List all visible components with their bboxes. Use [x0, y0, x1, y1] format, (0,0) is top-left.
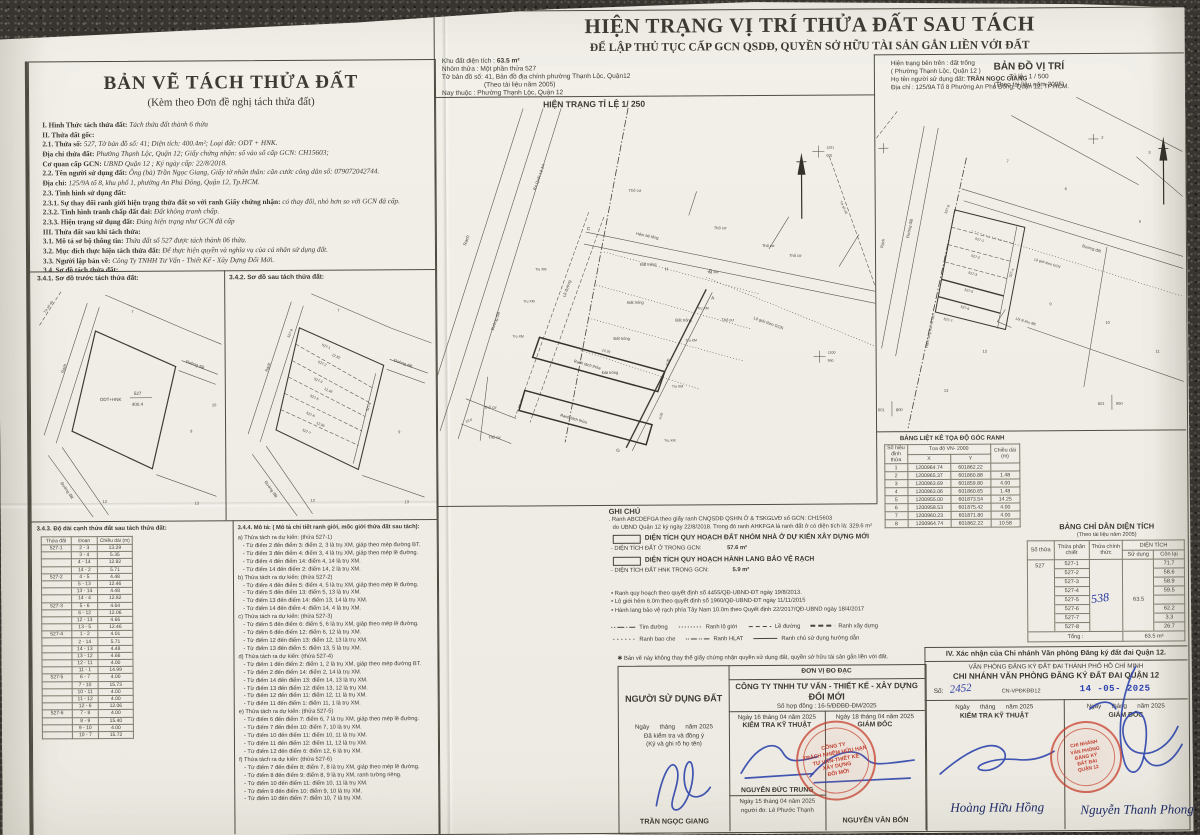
loc-n2: 2 — [1101, 135, 1104, 140]
area-col-chiet: Thửa phân chiết — [1054, 541, 1089, 560]
edge-row: 12 - 134.66 — [42, 616, 133, 624]
edge-row: 13 - 124.66 — [42, 652, 133, 660]
notes-title: GHI CHÚ — [609, 508, 641, 517]
unit-company2: ĐỔI MỚI — [729, 691, 925, 703]
area-use-value: 63.5 — [1123, 597, 1154, 604]
dim-100: 10.0 — [465, 418, 473, 424]
coord-col-x: X — [907, 454, 950, 464]
edge-row: 4 - 1412.82 — [41, 559, 132, 567]
loc-c2b: 900 — [1116, 401, 1123, 406]
strip-527-7: 527-7 — [302, 428, 312, 435]
area-col-dt: DIỆN TÍCH — [1123, 540, 1185, 550]
box1-sub-value: 57.6 m² — [727, 545, 747, 551]
office-tech-name: Hoàng Hữu Hồng — [950, 799, 1044, 816]
area-total-label: Tổng : — [1028, 631, 1123, 642]
main-title: HIỆN TRẠNG VỊ TRÍ THỬA ĐẤT SAU TÁCH — [454, 11, 1166, 40]
edge-row: 9 - 104.00 — [42, 724, 133, 732]
edge-row: 11 - 124.00 — [42, 695, 133, 703]
parcel-info-lines: I. Hình Thức tách thửa đất: Tách thửa đấ… — [42, 119, 427, 276]
edge-row: 11 - 114.99 — [42, 667, 133, 675]
neighbor-10: 10 — [212, 402, 217, 407]
loc-527-7: 527-7 — [943, 317, 953, 323]
box2-sub-value: 5.9 m² — [732, 567, 749, 573]
grid1-a: 1201 — [826, 146, 834, 150]
loc-527-8: 527-8 — [944, 204, 951, 214]
strip-527-5: 527-5 — [309, 394, 319, 401]
office-stamp-text: CHI NHÁNHVĂN PHÒNGĐĂNG KÝĐẤT ĐAIQUẬN 12 — [1068, 739, 1103, 775]
edge-col-parcel: Thửa đất — [41, 537, 71, 545]
main-map-roads — [434, 106, 876, 452]
area-table-subtitle: (Theo tài liệu năm 2005) — [1027, 531, 1187, 538]
loc-loidi: Lối đi khu đất — [1015, 317, 1036, 327]
label-thocu-1: Thổ cư — [629, 188, 642, 193]
office-tech-signature — [932, 729, 1057, 788]
sketch-landtype: ODT+HNK — [100, 397, 122, 402]
coord-table-title: BẢNG LIỆT KÊ TỌA ĐỘ GÓC RANH — [882, 434, 1022, 442]
loc-rach: Rạch — [879, 238, 886, 248]
label-dattrong-4: Đất trống — [614, 336, 630, 341]
office-tech-role: KIỂM TRA KỸ THUẬT — [925, 712, 1064, 721]
legend-box1-swatch — [613, 535, 641, 544]
coord-col-y: Y — [951, 454, 991, 464]
unit-survey-date: Ngày 15 tháng 04 năm 2025 — [729, 799, 825, 807]
edge-row: 13 - 144.48 — [42, 587, 133, 595]
loc-n6: 6 — [1065, 186, 1068, 191]
label-truxm-5: Trụ XM — [697, 306, 708, 310]
main-map-grid-marks — [812, 146, 825, 363]
legend-item: Tim đường — [611, 622, 667, 634]
neighbor2-12: 12 — [310, 498, 315, 503]
notes-bullets: Ranh quy hoạch theo quyết định số 4455/Q… — [611, 588, 921, 615]
loc-duongdat-top: Đường đất — [1082, 243, 1103, 254]
label-truxm-7: Trụ XM — [672, 384, 683, 388]
loc-c1b: 800 — [896, 407, 903, 412]
coord-col-point: Số hiệu đỉnh thửa — [885, 445, 908, 464]
label-truxm-8: Trụ XM — [664, 439, 675, 443]
neighbor2-9: 9 — [398, 429, 401, 434]
office-tech-date: Ngày tháng năm 2025 — [925, 703, 1064, 711]
label-truxm-3: Trụ XM — [512, 334, 523, 338]
edge-table-title: 3.4.3. Độ dài cạnh thửa đất sau tách thử… — [37, 525, 233, 533]
loc-527-1: 527-1 — [975, 237, 985, 243]
desc-line: - Từ điểm 1 đến điểm 2: điểm 1, 2 là trụ… — [238, 661, 436, 670]
main-map-north-arrow — [796, 153, 806, 219]
label-le-duong: Lề đường — [561, 279, 572, 297]
edge-row: 10 - 114.00 — [42, 688, 133, 696]
legend-item: Lề đường — [747, 621, 800, 633]
sketch2-rach: Rạch — [264, 362, 272, 372]
edge-row: 8 - 915.40 — [42, 717, 133, 725]
edge-row: 527-12 - 313.29 — [41, 544, 132, 552]
edge-row: 527-41 - 24.01 — [42, 631, 133, 639]
edge-row: 14 - 412.82 — [42, 595, 133, 603]
office-dir-name: Nguyễn Thanh Phong — [1080, 801, 1193, 818]
scanned-document: BẢN VẼ TÁCH THỬA ĐẤT (Kèm theo Đơn đề ng… — [0, 0, 1200, 835]
unit-dir-name: NGUYỄN VĂN BỐN — [825, 816, 925, 825]
desc-title: 3.4.4. Mô tả: ( Mô tả chi tiết ranh giới… — [238, 524, 436, 532]
dim-3: 12.06 — [316, 421, 326, 428]
sketch-road-label: Đường đất — [60, 481, 76, 500]
sketch-parcel-area: 400.4 — [132, 402, 144, 407]
edge-row: 12 - 612.06 — [42, 702, 133, 710]
label-thocu-4: Thổ cư — [789, 253, 802, 258]
label-thocu-6: Thổ cư — [484, 405, 497, 410]
loc-n12: 12 — [983, 349, 988, 354]
edge-row: 527-56 - 74.00 — [42, 674, 133, 682]
loc-527-2: 527-2 — [971, 254, 981, 260]
loc-n11: 11 — [1156, 349, 1161, 354]
paper-sheet: BẢN VẼ TÁCH THỬA ĐẤT (Kèm theo Đơn đề ng… — [0, 0, 1200, 835]
edge-row: 527-35 - 64.64 — [42, 602, 133, 610]
dim-1: 12.82 — [331, 353, 341, 360]
loc-logioi: Lộ giới theo GCN — [1034, 257, 1062, 269]
sketch2-road2: Đường đất — [393, 357, 414, 369]
dim-2: 12.46 — [323, 387, 333, 394]
point-H: H — [665, 267, 668, 272]
office-code: CN-VPĐKĐĐ12 — [1002, 688, 1041, 695]
edge-row: 13 - 512.46 — [42, 623, 133, 631]
handwritten-so-number: 2452 — [949, 682, 972, 696]
label-hem: Hẻm bê tông — [636, 231, 659, 241]
grid2-b: 950 — [828, 359, 834, 363]
edge-row: 3 - 45.35 — [41, 552, 132, 560]
loc-n5: 5 — [1139, 219, 1142, 224]
edge-row: 12 - 114.00 — [42, 659, 133, 667]
desc-lines: a) Thửa tách ra dự kiến: (thửa 527-1)- T… — [238, 534, 438, 805]
label-duong-dat: Đường đất — [490, 310, 502, 331]
label-lo-gioi: Lộ giới theo GCN — [753, 315, 784, 330]
label-toso40: Tờ số 40 — [839, 200, 848, 214]
desc-line: - Từ điểm 10 đến điểm 7: điểm 10, 7 là t… — [239, 795, 437, 804]
loc-n10: 10 — [1105, 320, 1110, 325]
area-label: Khu đất diện tích : — [442, 58, 495, 65]
edge-row: 14 - 134.48 — [42, 645, 133, 653]
area-col-chinh: Thửa chính thức — [1089, 540, 1123, 559]
label-ranh-1: Ranh tách thửa — [573, 358, 602, 370]
unit-header: ĐƠN VỊ ĐO ĐẠC — [729, 667, 925, 676]
edge-row: 7 - 1015.73 — [42, 681, 133, 689]
sketch-before-roads — [39, 290, 222, 517]
strip-527-8: 527-8 — [287, 328, 294, 338]
company-stamp-text: CÔNG TYTRÁCH NHIỆM HỮU HẠNTƯ VẤN-THIẾT K… — [801, 738, 872, 784]
legend-item: Ranh xây dựng — [810, 620, 878, 632]
loc-527-5: 527-5 — [964, 288, 974, 294]
point-A: A — [711, 295, 714, 300]
area-parcel-number: 527 — [1027, 563, 1053, 570]
sketch-parcel-num: 527 — [134, 391, 142, 396]
label-rach: Rạch — [462, 234, 470, 246]
legend-box2-swatch — [613, 557, 641, 566]
dim-400b: 4.00 — [658, 412, 664, 420]
edge-row: 2 - 145.71 — [42, 638, 133, 646]
legend-item: Ranh lộ giới — [678, 621, 737, 633]
handwritten-538: 538 — [1090, 590, 1110, 607]
edge-col-len: Chiều dài (m) — [97, 536, 132, 544]
legend-item: Ranh HLAT — [685, 633, 743, 645]
area-col-so: Số thửa — [1027, 541, 1054, 560]
label-dattrong-3: Đất trống — [675, 317, 691, 322]
strip-527-4: 527-4 — [365, 402, 372, 412]
label-thocu-2: Thổ cư — [714, 225, 727, 230]
dim-400a: 4.00 — [665, 358, 671, 366]
loc-map-roads — [876, 96, 1184, 428]
sketch2-road: Đường đất — [264, 480, 280, 499]
sketch-before-title: 3.4.1. Sơ đồ trước tách thửa đất: — [37, 274, 217, 283]
label-thocu-5: Thổ cư — [721, 317, 734, 322]
coord-col-len: Chiều dài (m) — [990, 444, 1020, 463]
user-date: Ngày tháng năm 2025 — [620, 723, 728, 731]
neighbor-12: 12 — [102, 499, 107, 504]
desc-line: - Từ điểm 7 đến điểm 8: điểm 7, 8 là trụ… — [239, 764, 437, 773]
legend-item: Ranh chủ sử dụng hướng dẫn — [753, 632, 859, 645]
label-dattrong-5: Đất trống — [602, 370, 618, 375]
label-thocu-7: Thổ cư — [488, 435, 501, 440]
edge-col-seg: Đoạn — [71, 537, 97, 545]
legend-item: Ranh bao che — [611, 634, 675, 646]
main-survey-map: Rạch Ra Quốc Lộ 1A Đường đất Lề đường Hẻ… — [434, 106, 876, 506]
neighbor-7: 7 — [131, 309, 134, 314]
area-col-sd: Sử dụng — [1123, 550, 1154, 559]
sketch-rach-label: Rạch — [60, 363, 68, 373]
edge-row: 5 - 1312.46 — [41, 580, 132, 588]
neighbor-9: 9 — [190, 428, 193, 433]
edge-row: 14 - 25.71 — [41, 566, 132, 574]
loc-map-north-arrow — [1158, 137, 1168, 205]
edge-row: 527-24 - 54.48 — [41, 573, 132, 581]
loc-n13: 13 — [944, 388, 949, 393]
loc-c1a: 601 — [878, 407, 885, 412]
loc-hlbv: Hành lang bảo vệ rạch — [925, 313, 936, 348]
edge-row: 527-67 - 84.00 — [42, 710, 133, 718]
sketch-after-roads — [247, 293, 432, 516]
edge-row: 10 - 715.72 — [42, 731, 133, 739]
sketch-before-map: Rạch Tờ số 40 Đường đất Đường đất ODT+HN… — [35, 284, 222, 517]
edge-row: 6 - 1212.06 — [42, 609, 133, 617]
location-map: Rạch Đường đất Hành lang bảo vệ rạch Đườ… — [876, 96, 1186, 431]
sketch-after-map: Rạch Đường đất Đường đất 527-1 527-2 527… — [227, 283, 432, 516]
sketch-toso-label: Tờ số 40 — [43, 300, 54, 314]
unit-surveyor: người đo: Lê Phước Thạnh — [729, 808, 825, 816]
unit-tech-date: Ngày 16 tháng 04 năm 2025 — [729, 714, 825, 722]
label-truxm-6: Trụ XM — [686, 338, 697, 342]
user-signature — [642, 747, 722, 817]
dim-1425: 14.25 — [601, 348, 611, 354]
label-truxm-2: Trụ XM — [523, 299, 534, 303]
label-dattrong-1: Đất trống — [640, 262, 656, 267]
user-title: NGƯỜI SỬ DỤNG ĐẤT — [622, 693, 726, 704]
site-info-left: Khu đất diện tích : 63.5 m² Nhóm thửa : … — [442, 56, 702, 98]
label-truxm-1: Trụ XM — [535, 267, 546, 271]
neighbor2-7: 7 — [337, 308, 340, 313]
strip-527-3: 527-3 — [313, 377, 323, 384]
grid2-a: 1200 — [828, 351, 836, 355]
loc-527-6: 527-6 — [960, 305, 970, 311]
loc-527-3: 527-3 — [968, 271, 978, 277]
left-panel-subtitle: (Kèm theo Đơn đề nghị tách thửa đất) — [38, 95, 424, 110]
strip-527-6: 527-6 — [306, 411, 316, 418]
loc-n3: 3 — [1148, 150, 1151, 155]
main-map-parcels — [460, 251, 760, 446]
unit-contract: Số hợp đồng : 16-5/ĐĐBĐ-ĐM/2025 — [729, 702, 925, 711]
loc-n9: 9 — [1049, 301, 1052, 306]
office-so-label: Số: — [934, 688, 944, 696]
point-B: B — [709, 268, 712, 273]
loc-527-4: 527-4 — [1008, 268, 1015, 278]
label-thocu-3: Thổ cư — [762, 243, 775, 248]
grid1-b: 000 — [826, 154, 832, 158]
coord-col-coord: Tọa độ VN- 2000 — [907, 444, 990, 454]
neighbor-13: 13 — [194, 500, 199, 505]
strip-527-2: 527-2 — [317, 360, 327, 367]
point-G: G — [616, 448, 620, 453]
area-value: 63.5 m² — [497, 57, 520, 64]
loc-n7: 7 — [1006, 158, 1009, 163]
unit-company: CÔNG TY TNHH TƯ VẤN - THIẾT KẾ - XÂY DỰN… — [729, 681, 925, 691]
left-panel-title: BẢN VẼ TÁCH THỬA ĐẤT — [38, 71, 424, 96]
label-dattrong-2: Đất trống — [627, 300, 643, 305]
edge-table: Thửa đất Đoạn Chiều dài (m) 527-12 - 313… — [41, 536, 134, 740]
box2-sub-label: - DIỆN TÍCH ĐẤT HNK TRONG GCN: — [611, 567, 709, 574]
user-name: TRẦN NGỌC GIANG — [620, 817, 728, 826]
point-C: C — [587, 226, 591, 231]
loc-c2a: 601 — [1098, 401, 1105, 406]
notes-legend: Tim đườngRanh lộ giớiLề đườngRanh xây dự… — [611, 620, 911, 646]
user-agree: Đã kiểm tra và đồng ý — [620, 732, 728, 740]
sketch-before-parcel — [71, 331, 176, 470]
label-ra-quoc-lo: Ra Quốc Lộ 1A — [532, 163, 546, 191]
area-col-cl: Còn lại — [1154, 550, 1185, 559]
area-total-value: 63.5 m² — [1123, 631, 1185, 641]
sketch-road-label2: Đường đất — [185, 359, 206, 371]
box1-sub-label: - DIỆN TÍCH ĐẤT Ở TRONG GCN: — [611, 545, 702, 552]
neighbor2-13: 13 — [404, 499, 409, 504]
sketch-after-title: 3.4.2. Sơ đồ sau tách thửa đất: — [229, 273, 409, 282]
strip-527-1: 527-1 — [321, 343, 331, 350]
